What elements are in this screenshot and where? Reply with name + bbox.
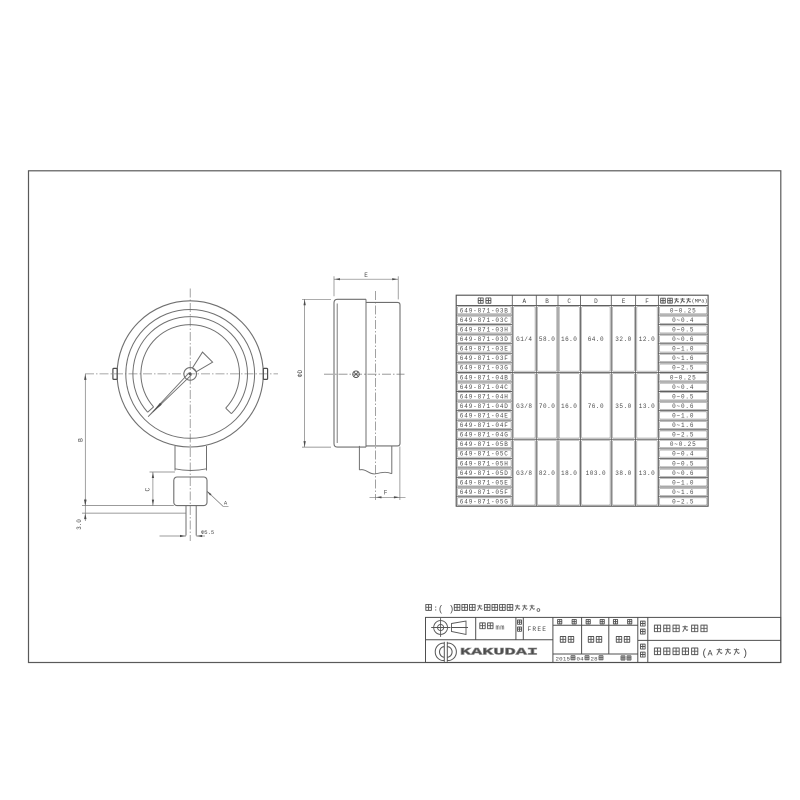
svg-text:649-871-03C: 649-871-03C <box>460 317 509 324</box>
svg-text:FREE: FREE <box>528 626 548 633</box>
svg-text:( ): ( ) <box>438 605 454 615</box>
svg-text:649-871-03D: 649-871-03D <box>460 336 509 343</box>
svg-text:35.0: 35.0 <box>615 403 631 410</box>
svg-text:E: E <box>622 298 626 305</box>
svg-text:A: A <box>708 649 714 659</box>
svg-text:D: D <box>594 298 598 305</box>
svg-text:0~0.6: 0~0.6 <box>672 336 694 343</box>
svg-text:0~2.5: 0~2.5 <box>672 365 694 372</box>
svg-text:16.0: 16.0 <box>561 403 577 410</box>
svg-text:649-871-04H: 649-871-04H <box>460 393 509 400</box>
svg-text:04: 04 <box>577 655 585 662</box>
svg-text:0~1.0: 0~1.0 <box>672 413 694 420</box>
svg-text:0~1.6: 0~1.6 <box>672 422 694 429</box>
svg-text:0~0.6: 0~0.6 <box>672 403 694 410</box>
svg-text:76.0: 76.0 <box>588 403 604 410</box>
svg-text:649-871-04B: 649-871-04B <box>460 374 509 381</box>
svg-text:18.0: 18.0 <box>561 470 577 477</box>
svg-text:649-871-04C: 649-871-04C <box>460 384 509 391</box>
svg-text:0~1.6: 0~1.6 <box>672 355 694 362</box>
svg-text:32.0: 32.0 <box>615 336 631 343</box>
svg-text:C: C <box>567 298 571 305</box>
svg-text:0~0.5: 0~0.5 <box>672 460 694 467</box>
svg-text:649-871-03H: 649-871-03H <box>460 327 509 334</box>
svg-text:649-871-05C: 649-871-05C <box>460 451 509 458</box>
svg-text:mm: mm <box>496 625 505 633</box>
svg-text:649-871-05E: 649-871-05E <box>460 479 509 486</box>
svg-text:B: B <box>545 298 549 305</box>
svg-text:3.0: 3.0 <box>76 519 83 530</box>
svg-text:0~0.6: 0~0.6 <box>672 470 694 477</box>
svg-text:58.0: 58.0 <box>539 336 555 343</box>
svg-text:F: F <box>384 490 388 497</box>
svg-text:13.0: 13.0 <box>639 470 655 477</box>
svg-text:0~1.0: 0~1.0 <box>672 346 694 353</box>
svg-text:649-871-05H: 649-871-05H <box>460 460 509 467</box>
svg-text:ΦD: ΦD <box>297 370 304 378</box>
svg-text:): ) <box>742 648 748 660</box>
svg-text:103.0: 103.0 <box>586 470 607 477</box>
svg-text:2015: 2015 <box>556 655 571 662</box>
svg-text:12.0: 12.0 <box>639 336 655 343</box>
svg-text:0~0.4: 0~0.4 <box>672 451 694 458</box>
svg-text:B: B <box>78 438 85 442</box>
svg-text:649-871-03G: 649-871-03G <box>460 365 509 372</box>
svg-text:64.0: 64.0 <box>588 336 604 343</box>
svg-text:28: 28 <box>591 655 599 662</box>
svg-text:16.0: 16.0 <box>561 336 577 343</box>
svg-text:649-871-04G: 649-871-04G <box>460 432 509 439</box>
svg-text:(MPa): (MPa) <box>692 299 708 305</box>
svg-text:0~2.5: 0~2.5 <box>672 499 694 506</box>
svg-text:F: F <box>645 298 649 305</box>
svg-text:G1/4: G1/4 <box>516 336 532 343</box>
svg-text:70.0: 70.0 <box>539 403 555 410</box>
svg-text:649-871-03F: 649-871-03F <box>460 355 509 362</box>
svg-text:649-871-03E: 649-871-03E <box>460 346 509 353</box>
svg-text:649-871-04F: 649-871-04F <box>460 422 509 429</box>
svg-text:649-871-04D: 649-871-04D <box>460 403 509 410</box>
svg-text:0~0.4: 0~0.4 <box>672 317 694 324</box>
svg-text:E: E <box>364 272 368 279</box>
svg-text:0~0.5: 0~0.5 <box>672 327 694 334</box>
svg-text:13.0: 13.0 <box>639 403 655 410</box>
svg-text:649-871-04E: 649-871-04E <box>460 413 509 420</box>
svg-text:38.0: 38.0 <box>615 470 631 477</box>
svg-text:Φ5.5: Φ5.5 <box>201 529 214 536</box>
svg-text:C: C <box>144 487 151 491</box>
svg-text:0~2.5: 0~2.5 <box>672 432 694 439</box>
svg-text:G3/8: G3/8 <box>516 470 532 477</box>
svg-text:0~1.6: 0~1.6 <box>672 489 694 496</box>
svg-text:KAKUDAI: KAKUDAI <box>460 648 538 659</box>
svg-text:0~0.5: 0~0.5 <box>672 393 694 400</box>
svg-text:0~1.0: 0~1.0 <box>672 479 694 486</box>
svg-text:0~0.25: 0~0.25 <box>670 374 697 381</box>
svg-text:82.0: 82.0 <box>539 470 555 477</box>
svg-text:0~0.25: 0~0.25 <box>670 441 697 448</box>
svg-text:G3/8: G3/8 <box>516 403 532 410</box>
svg-text:A: A <box>522 298 526 305</box>
svg-text:649-871-03B: 649-871-03B <box>460 307 509 314</box>
svg-text:649-871-05D: 649-871-05D <box>460 470 509 477</box>
svg-text:649-871-05B: 649-871-05B <box>460 441 509 448</box>
svg-text:0~0.25: 0~0.25 <box>670 307 697 314</box>
svg-text:0~0.4: 0~0.4 <box>672 384 694 391</box>
svg-text:649-871-05G: 649-871-05G <box>460 499 509 506</box>
svg-text:649-871-05F: 649-871-05F <box>460 489 509 496</box>
